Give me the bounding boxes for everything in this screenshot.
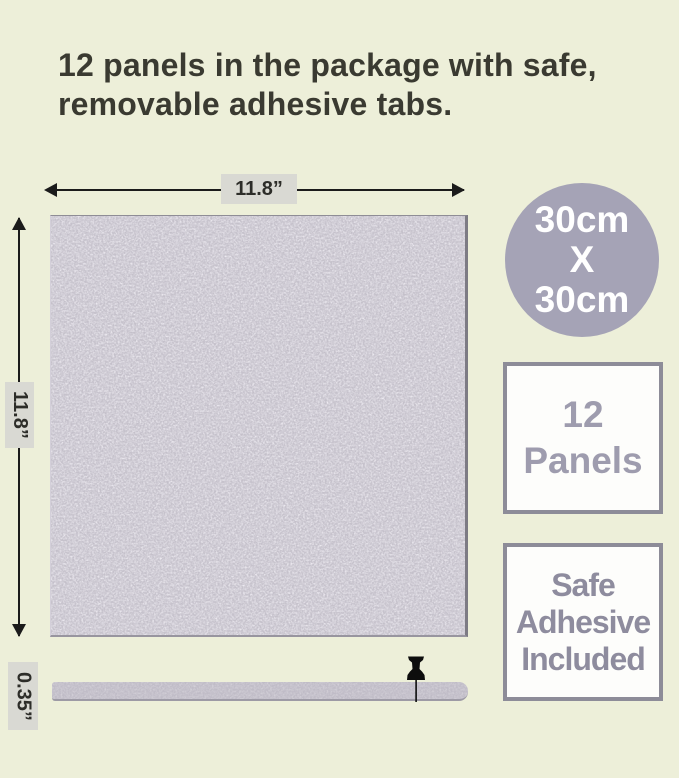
arrowhead-up-icon (12, 217, 26, 230)
size-line-2: X (570, 240, 595, 280)
thickness-dimension-label: 0.35” (8, 662, 38, 730)
arrowhead-down-icon (12, 624, 26, 637)
product-infographic: 12 panels in the package with safe, remo… (0, 0, 679, 778)
panel-count-number: 12 (562, 392, 603, 438)
size-circle-badge: 30cm X 30cm (505, 183, 659, 337)
arrowhead-left-icon (44, 183, 57, 197)
arrowhead-right-icon (452, 183, 465, 197)
adhesive-line-1: Safe (551, 567, 615, 604)
size-line-3: 30cm (535, 280, 630, 320)
panel-count-word: Panels (523, 438, 642, 484)
headline: 12 panels in the package with safe, remo… (58, 46, 636, 124)
width-dimension-label: 11.8” (221, 174, 297, 204)
height-dimension-label: 11.8” (5, 382, 34, 448)
panel-count-badge: 12 Panels (503, 362, 663, 514)
felt-panel-front (50, 215, 468, 637)
adhesive-line-3: Included (521, 641, 645, 678)
size-line-1: 30cm (535, 200, 630, 240)
adhesive-badge: Safe Adhesive Included (503, 543, 663, 701)
pushpin-icon (404, 656, 429, 704)
felt-texture (51, 216, 465, 635)
adhesive-line-2: Adhesive (516, 604, 650, 641)
